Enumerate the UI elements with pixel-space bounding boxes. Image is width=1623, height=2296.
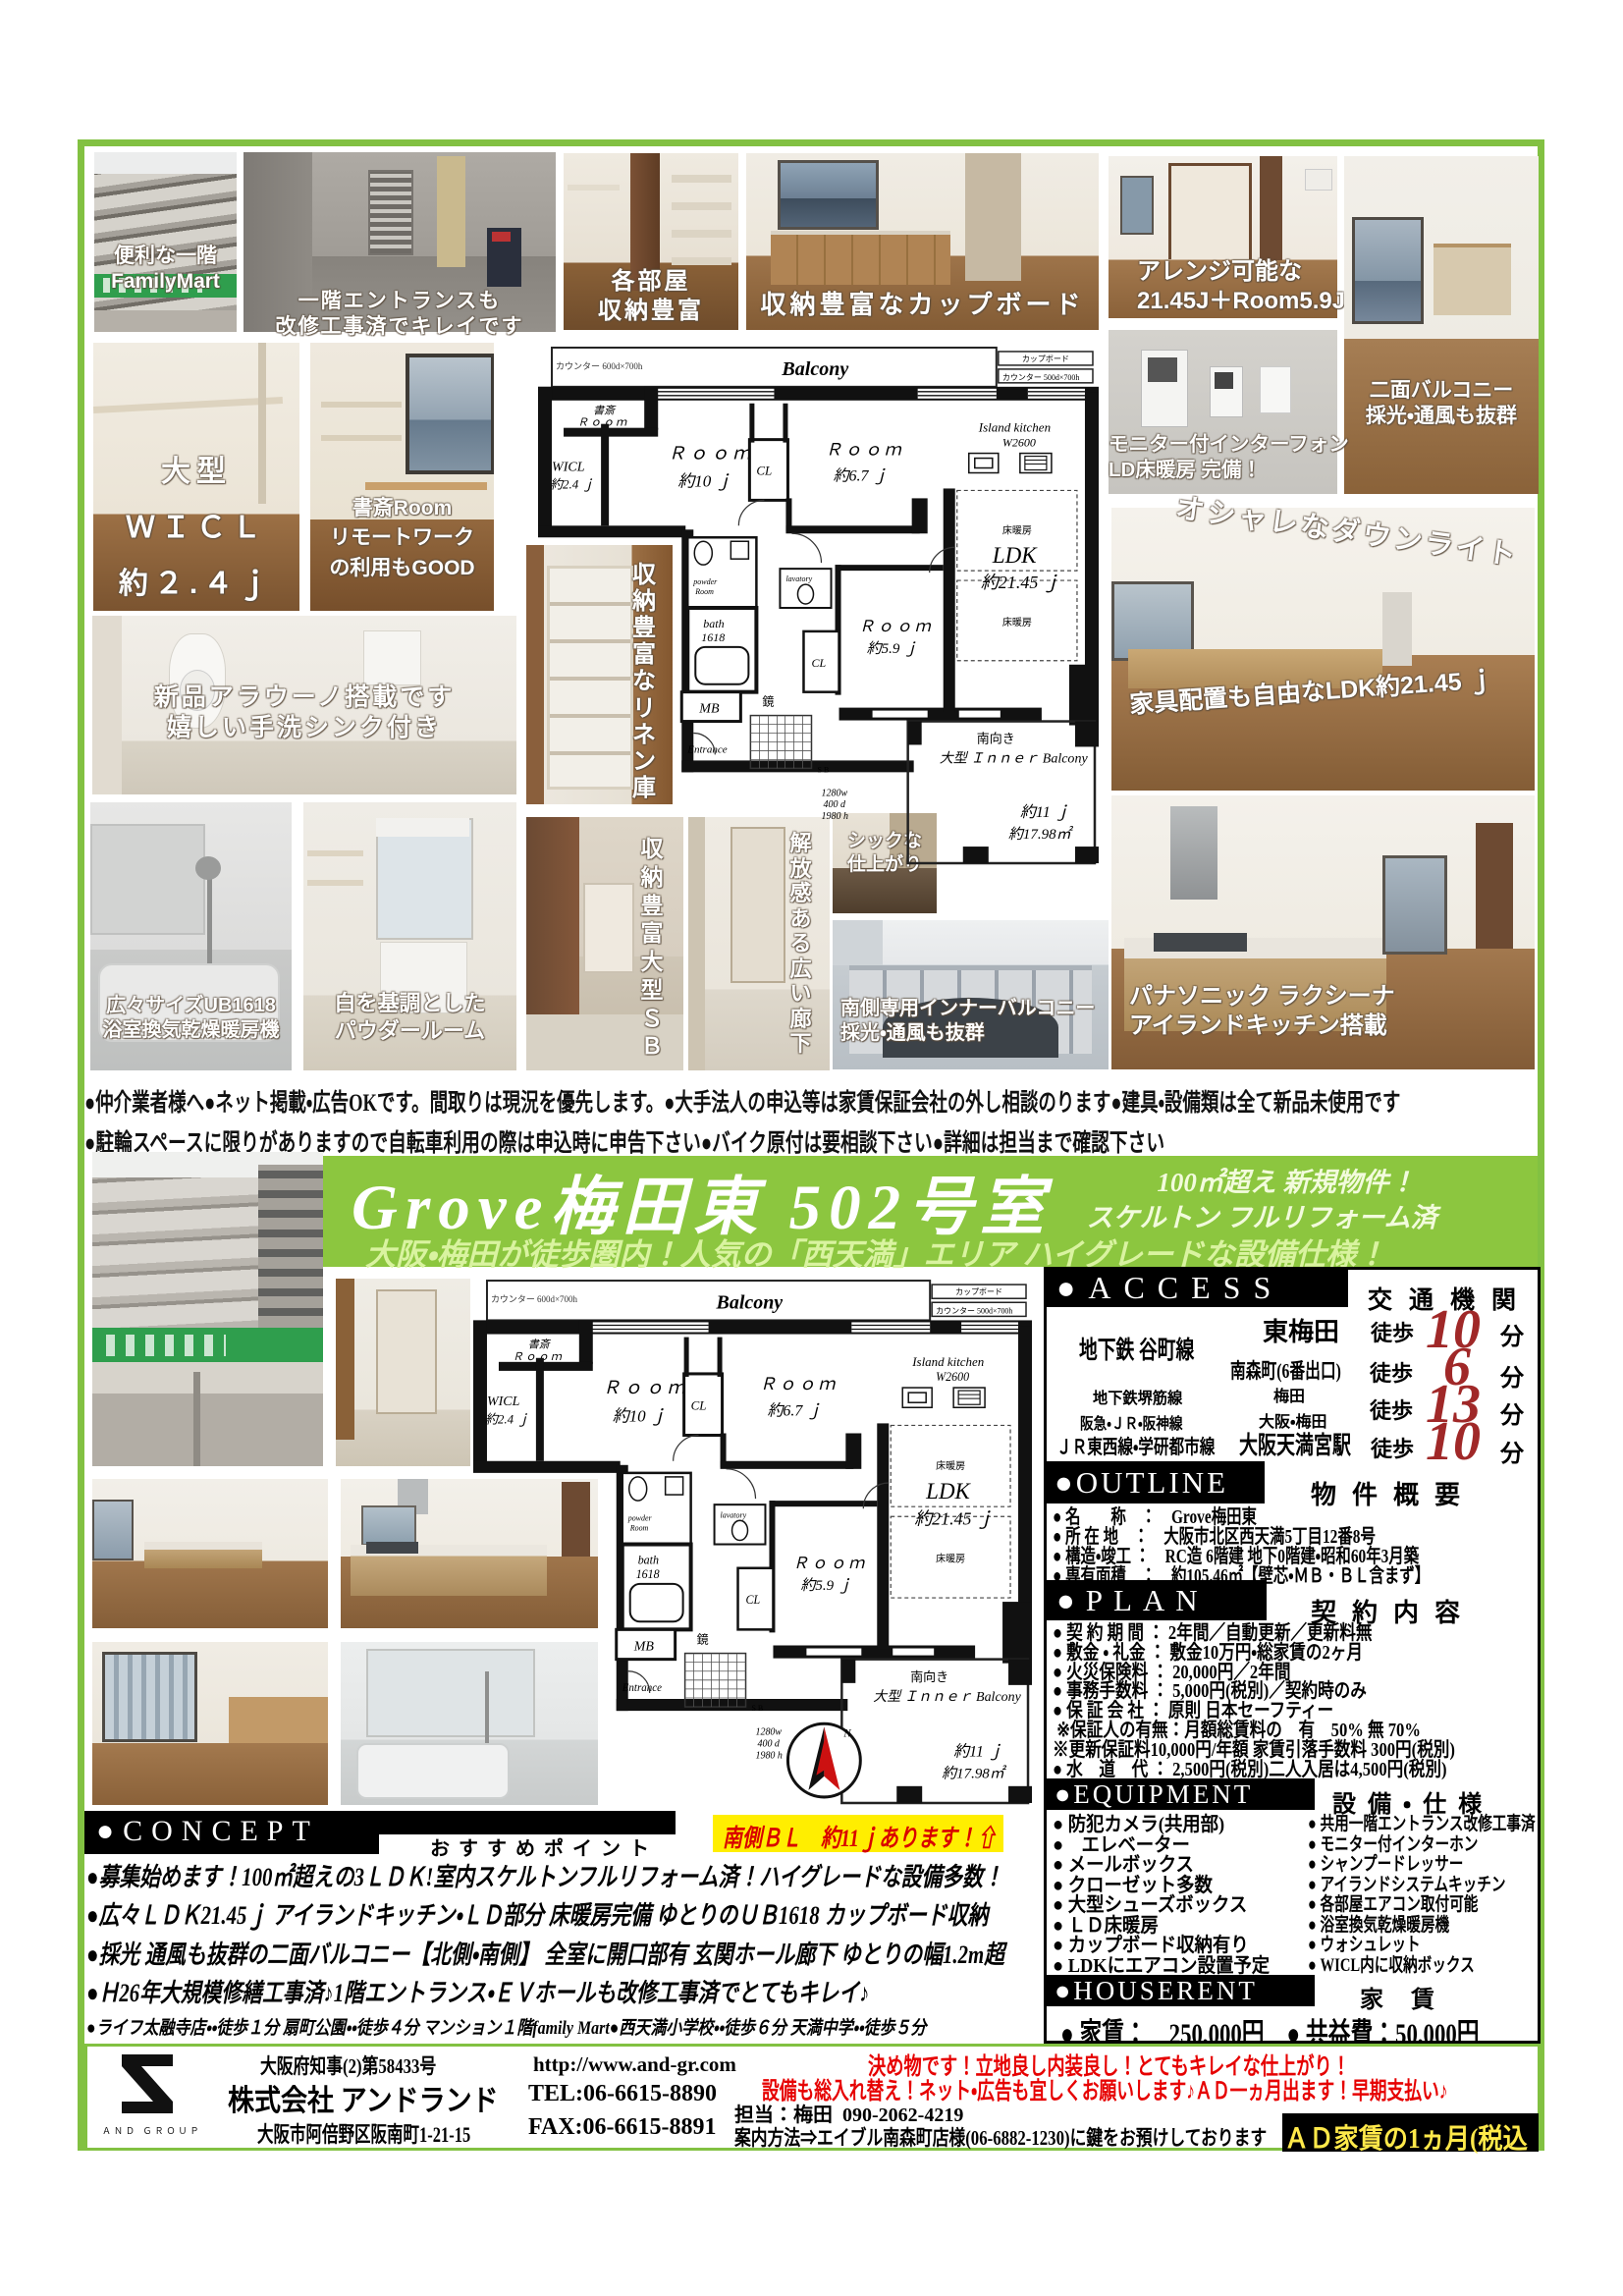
svg-text:大型 Ｉｎｎｅｒ Balcony: 大型 Ｉｎｎｅｒ Balcony — [940, 750, 1089, 766]
svg-text:カウンター 500d×700h: カウンター 500d×700h — [936, 1306, 1012, 1315]
svg-text:約2.4 ｊ: 約2.4 ｊ — [550, 476, 595, 492]
svg-text:1618: 1618 — [636, 1567, 660, 1581]
svg-text:大型 Ｉｎｎｅｒ Balcony: 大型 Ｉｎｎｅｒ Balcony — [873, 1689, 1021, 1705]
svg-text:1280w: 1280w — [822, 788, 848, 798]
svg-text:Entrance: Entrance — [686, 743, 727, 755]
svg-text:Ｒｏｏｍ: Ｒｏｏｍ — [603, 1378, 689, 1397]
svg-text:約17.98㎡: 約17.98㎡ — [1008, 825, 1074, 843]
svg-text:WICL: WICL — [487, 1394, 520, 1409]
svg-text:約11 ｊ: 約11 ｊ — [953, 1742, 1003, 1760]
svg-text:Ｒｏｏｍ: Ｒｏｏｍ — [826, 441, 904, 460]
svg-text:床暖房: 床暖房 — [1002, 523, 1032, 536]
svg-text:WICL: WICL — [552, 461, 585, 475]
svg-text:Island kitchen: Island kitchen — [911, 1354, 984, 1369]
svg-text:400 d: 400 d — [824, 799, 847, 810]
svg-text:CL: CL — [811, 656, 826, 670]
svg-text:bath: bath — [703, 617, 724, 630]
svg-text:床暖房: 床暖房 — [936, 1553, 965, 1565]
svg-text:書斎: 書斎 — [528, 1339, 552, 1351]
svg-text:Ｒｏｏｍ: Ｒｏｏｍ — [792, 1556, 867, 1572]
svg-text:Entrance: Entrance — [622, 1682, 662, 1694]
svg-text:Ｒｏｏｍ: Ｒｏｏｍ — [668, 444, 754, 464]
svg-text:S B: S B — [817, 765, 829, 774]
svg-text:Island kitchen: Island kitchen — [978, 420, 1051, 435]
svg-text:Balcony: Balcony — [716, 1291, 784, 1313]
svg-text:MB: MB — [633, 1638, 655, 1654]
svg-text:約11 ｊ: 約11 ｊ — [1020, 803, 1070, 821]
svg-text:床暖房: 床暖房 — [936, 1459, 965, 1472]
svg-text:1280w: 1280w — [755, 1726, 782, 1737]
svg-text:カップボード: カップボード — [955, 1287, 1002, 1296]
svg-text:LDK: LDK — [925, 1478, 971, 1503]
svg-text:鏡: 鏡 — [697, 1632, 709, 1646]
svg-text:カウンター 600d×700h: カウンター 600d×700h — [491, 1294, 577, 1304]
svg-text:MB: MB — [698, 702, 720, 717]
svg-text:約6.7 ｊ: 約6.7 ｊ — [834, 467, 889, 485]
svg-text:1618: 1618 — [701, 630, 725, 644]
svg-text:W2600: W2600 — [936, 1370, 969, 1384]
svg-text:Room: Room — [694, 587, 714, 596]
svg-text:南向き: 南向き — [910, 1669, 948, 1684]
svg-text:S B: S B — [752, 1704, 764, 1713]
svg-text:約21.45 ｊ: 約21.45 ｊ — [981, 573, 1060, 593]
svg-text:約17.98㎡: 約17.98㎡ — [942, 1765, 1007, 1782]
svg-text:約10 ｊ: 約10 ｊ — [613, 1406, 667, 1426]
svg-text:南向き: 南向き — [977, 732, 1015, 746]
svg-text:鏡: 鏡 — [762, 695, 774, 709]
svg-text:powder: powder — [692, 577, 718, 586]
svg-text:書斎: 書斎 — [593, 405, 617, 417]
svg-text:約5.9 ｊ: 約5.9 ｊ — [867, 640, 919, 657]
svg-text:CL: CL — [691, 1397, 707, 1412]
svg-text:Room: Room — [629, 1523, 649, 1532]
svg-text:CL: CL — [756, 464, 772, 478]
svg-text:約10 ｊ: 約10 ｊ — [677, 471, 731, 491]
svg-text:カップボード: カップボード — [1022, 355, 1069, 363]
svg-text:bath: bath — [638, 1554, 659, 1567]
svg-text:1980 h: 1980 h — [822, 811, 849, 822]
svg-text:CL: CL — [746, 1593, 761, 1607]
svg-text:約21.45 ｊ: 約21.45 ｊ — [914, 1508, 994, 1529]
svg-text:Ｒｏｏｍ: Ｒｏｏｍ — [859, 619, 934, 635]
svg-text:W2600: W2600 — [1002, 436, 1036, 450]
svg-text:400 d: 400 d — [757, 1738, 780, 1749]
svg-text:lavatory: lavatory — [785, 574, 812, 583]
svg-text:1980 h: 1980 h — [755, 1751, 782, 1762]
svg-text:カウンター 500d×700h: カウンター 500d×700h — [1002, 373, 1080, 382]
svg-text:Ｒｏｏｍ: Ｒｏｏｍ — [759, 1375, 838, 1394]
svg-text:N: N — [842, 1727, 851, 1739]
svg-text:LDK: LDK — [992, 543, 1038, 568]
svg-text:powder: powder — [627, 1513, 653, 1522]
svg-text:床暖房: 床暖房 — [1002, 616, 1032, 629]
svg-text:lavatory: lavatory — [721, 1510, 747, 1519]
svg-text:Balcony: Balcony — [781, 358, 848, 380]
svg-text:約6.7 ｊ: 約6.7 ｊ — [767, 1401, 822, 1419]
svg-text:約5.9 ｊ: 約5.9 ｊ — [800, 1577, 851, 1594]
svg-text:カウンター 600d×700h: カウンター 600d×700h — [556, 361, 643, 371]
svg-text:約2.4 ｊ: 約2.4 ｊ — [485, 1411, 529, 1427]
